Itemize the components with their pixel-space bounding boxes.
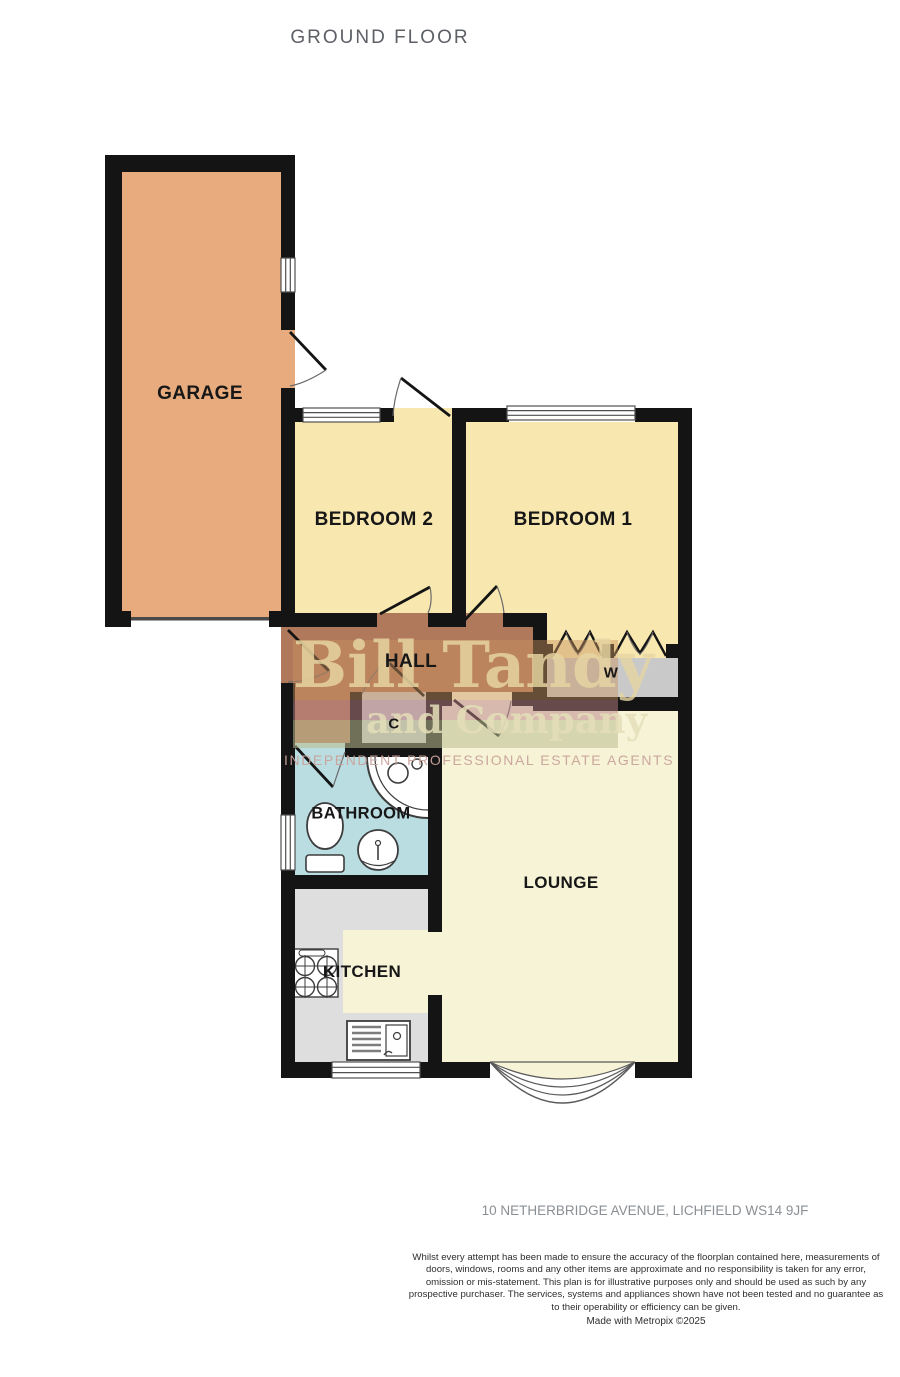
bifold-post bbox=[666, 644, 678, 658]
bathroom-window bbox=[281, 815, 295, 870]
wall bbox=[635, 1062, 692, 1078]
wall bbox=[420, 1062, 442, 1078]
disclaimer: Whilst every attempt has been made to en… bbox=[408, 1252, 884, 1328]
bedroom1-door-gap bbox=[466, 613, 503, 627]
wall bbox=[105, 155, 122, 627]
property-address: 10 NETHERBRIDGE AVENUE, LICHFIELD WS14 9… bbox=[420, 1203, 870, 1218]
basin bbox=[358, 830, 398, 870]
wall bbox=[452, 408, 466, 627]
garage-window bbox=[281, 258, 295, 292]
lounge-label: LOUNGE bbox=[523, 873, 598, 893]
wall bbox=[281, 388, 295, 627]
wall bbox=[428, 613, 452, 627]
bathroom-label: BATHROOM bbox=[311, 805, 410, 824]
wall bbox=[281, 408, 305, 422]
bedroom1-window bbox=[507, 406, 635, 420]
bedroom2-label: BEDROOM 2 bbox=[315, 509, 434, 531]
kitchen-label: KITCHEN bbox=[323, 962, 401, 982]
garage-side-door-gap bbox=[281, 330, 295, 388]
wall bbox=[105, 611, 131, 627]
kitchen-sink bbox=[347, 1021, 410, 1060]
garage-side-door bbox=[290, 332, 326, 386]
watermark-suffix: and Company bbox=[366, 702, 647, 739]
bedroom2-window bbox=[303, 408, 380, 422]
watermark-name: Bill Tandy bbox=[293, 634, 618, 698]
wall bbox=[281, 163, 295, 258]
wall bbox=[281, 870, 295, 1078]
bedroom2-door-gap bbox=[377, 613, 428, 627]
disclaimer-text: Whilst every attempt has been made to en… bbox=[408, 1252, 884, 1314]
wall bbox=[105, 155, 295, 172]
kitchen-window bbox=[332, 1062, 420, 1078]
wall bbox=[678, 408, 692, 1078]
wall bbox=[466, 408, 509, 422]
wall bbox=[442, 1062, 490, 1078]
bedroom1-label: BEDROOM 1 bbox=[514, 509, 633, 531]
watermark-tagline: INDEPENDENT PROFESSIONAL ESTATE AGENTS bbox=[284, 752, 674, 768]
cupboard-label: C bbox=[388, 716, 399, 733]
wall bbox=[281, 875, 438, 889]
wall bbox=[281, 1062, 332, 1078]
garage-door-line bbox=[131, 617, 269, 621]
wardrobe-label: W bbox=[604, 665, 619, 682]
wall bbox=[295, 613, 377, 627]
hall-label: HALL bbox=[385, 651, 437, 673]
page-title: GROUND FLOOR bbox=[230, 27, 530, 49]
wall bbox=[281, 292, 295, 330]
wall bbox=[380, 408, 394, 422]
floorplan-page: GROUND FLOOR bbox=[0, 0, 900, 1377]
garage-label: GARAGE bbox=[157, 383, 243, 405]
metropix-credit: Made with Metropix ©2025 bbox=[408, 1315, 884, 1328]
